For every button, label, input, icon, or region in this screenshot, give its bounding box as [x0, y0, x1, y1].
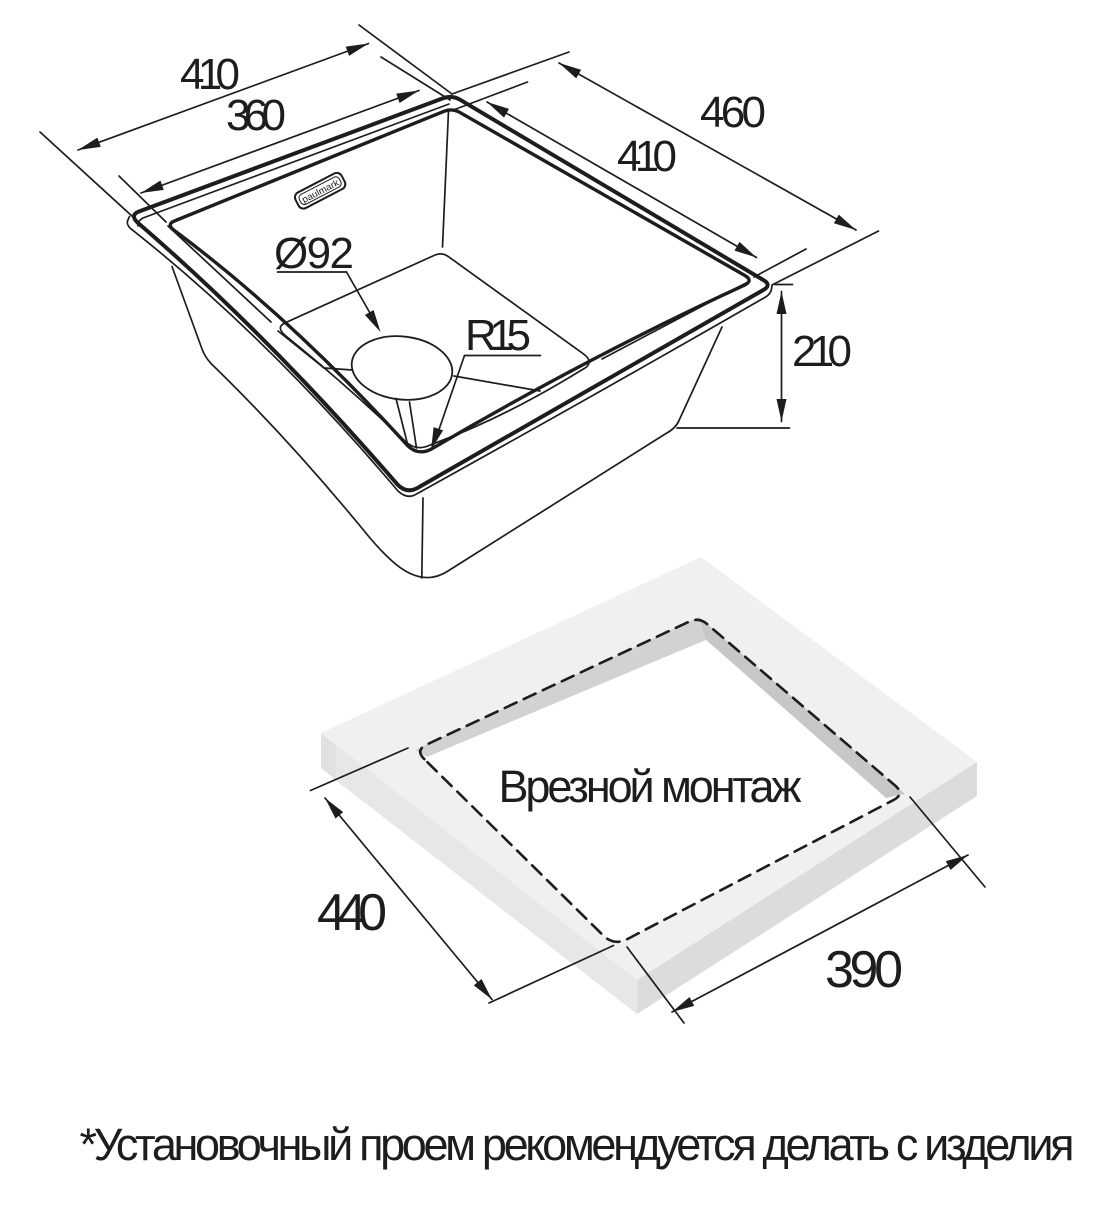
- svg-text:Врезной монтаж: Врезной монтаж: [499, 761, 802, 812]
- svg-text:390: 390: [825, 941, 903, 999]
- svg-text:*Установочный проем рекомендуе: *Установочный проем рекомендуется делать…: [80, 1119, 1075, 1170]
- svg-text:R15: R15: [465, 311, 531, 360]
- svg-text:210: 210: [792, 327, 852, 376]
- svg-text:Ø92: Ø92: [274, 229, 354, 278]
- svg-text:460: 460: [700, 88, 766, 137]
- svg-text:410: 410: [617, 132, 677, 181]
- svg-text:360: 360: [226, 91, 286, 140]
- svg-text:440: 440: [317, 884, 387, 942]
